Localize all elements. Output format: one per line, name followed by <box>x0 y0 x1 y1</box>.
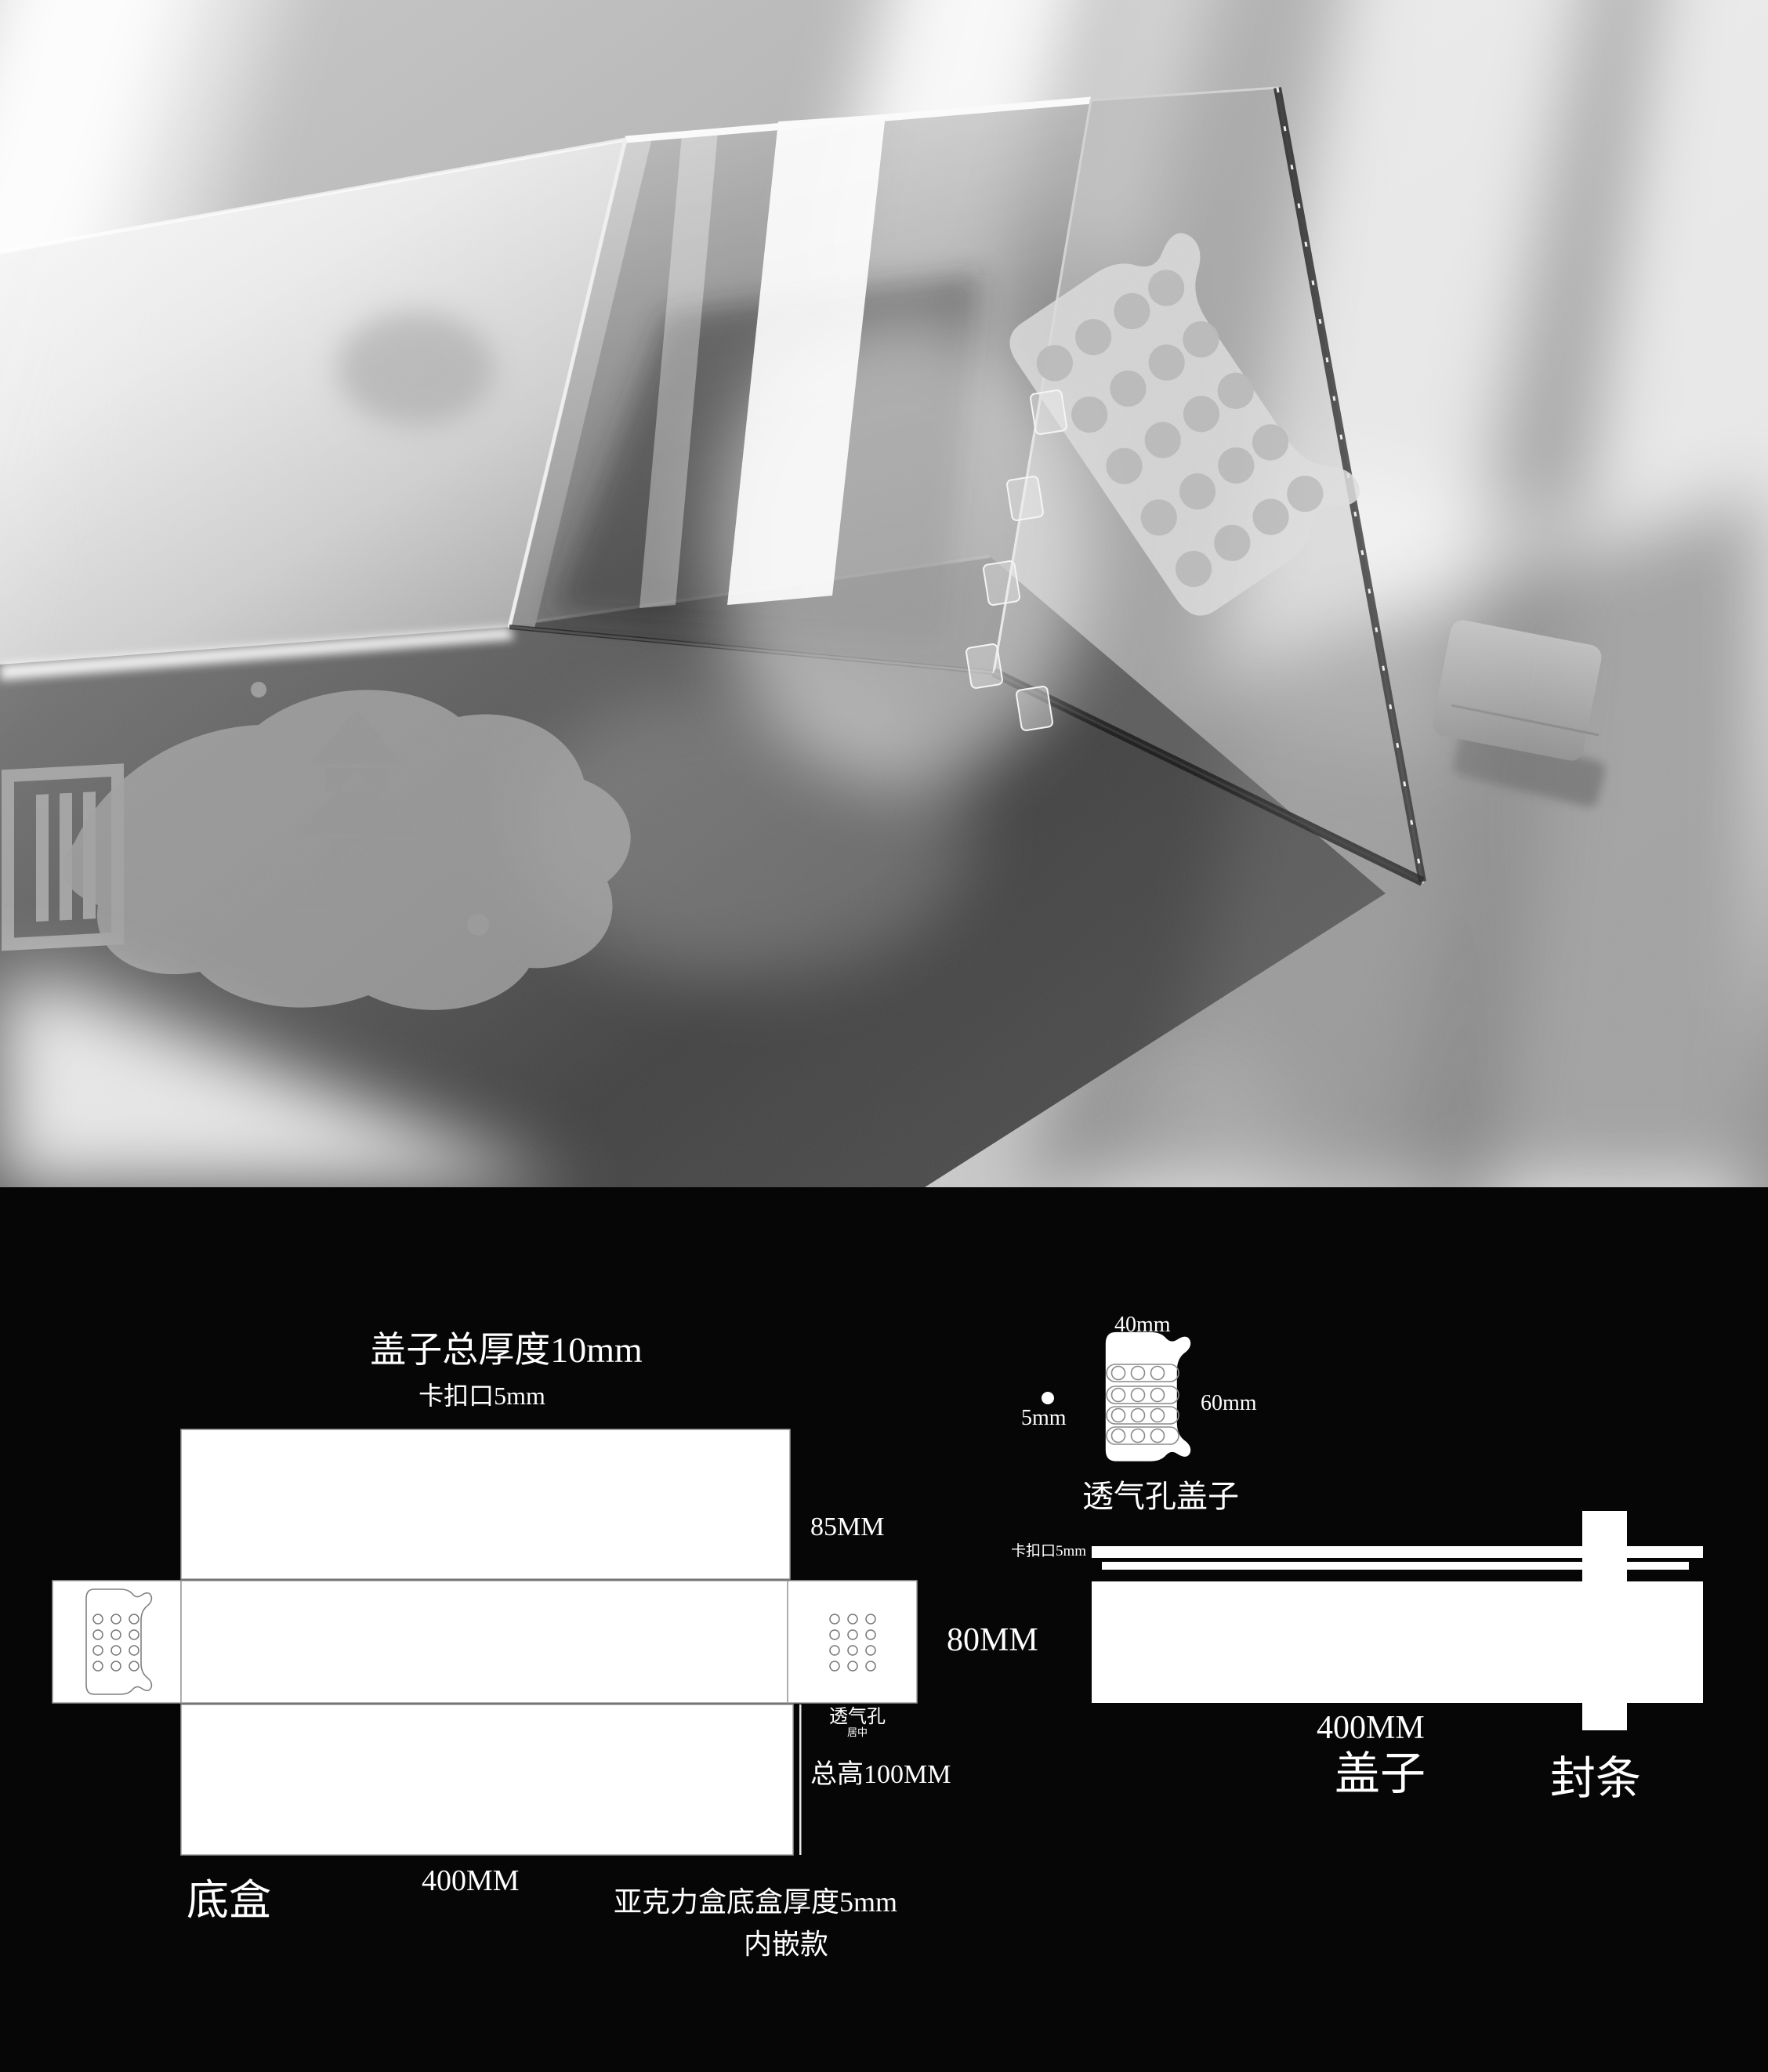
note-snap: 卡扣口5mm <box>313 1382 650 1410</box>
note-material: 亚克力盒底盒厚度5mm <box>614 1887 897 1918</box>
bottom-flap <box>181 1704 793 1855</box>
part-name-seal: 封条 <box>1550 1754 1641 1804</box>
part-name-lid: 盖子 <box>1335 1749 1426 1799</box>
dim-width-lid: 400MM <box>1317 1710 1425 1746</box>
dim-vent-width: 40mm <box>1114 1313 1171 1338</box>
dim-width-bottom: 400MM <box>422 1865 520 1898</box>
dim-vent-height: 60mm <box>1201 1392 1257 1416</box>
product-render-photo <box>0 0 1768 1359</box>
unfolded-box-diagram <box>53 1429 917 1855</box>
body-band <box>181 1581 788 1703</box>
right-vent-tab <box>788 1581 917 1703</box>
part-name-vent-cover: 透气孔盖子 <box>1082 1480 1239 1514</box>
height-dimension-line <box>799 1704 802 1855</box>
note-snap-lid: 卡扣口5mm <box>1011 1544 1086 1560</box>
left-tab <box>53 1581 181 1703</box>
note-style: 内嵌款 <box>614 1929 958 1961</box>
dim-vent-hole: 5mm <box>1021 1407 1067 1431</box>
hole-size-dot <box>1042 1392 1054 1404</box>
dim-total-height: 总高100MM <box>810 1760 951 1789</box>
vent-align-label: 居中 <box>806 1727 909 1738</box>
vent-label: 透气孔 <box>806 1707 909 1727</box>
film-grain <box>0 0 1768 1187</box>
note-lid-thickness: 盖子总厚度10mm <box>310 1331 702 1371</box>
dim-flap-height: 85MM <box>810 1512 884 1541</box>
top-flap <box>181 1429 790 1579</box>
dim-band-height: 80MM <box>947 1622 1038 1658</box>
seal-strip <box>1582 1511 1627 1730</box>
design-sheet: 盖子总厚度10mm 卡扣口5mm 85MM 80MM 透气孔 居中 总高100M… <box>0 0 1768 2072</box>
part-name-bottom-box: 底盒 <box>187 1878 271 1924</box>
